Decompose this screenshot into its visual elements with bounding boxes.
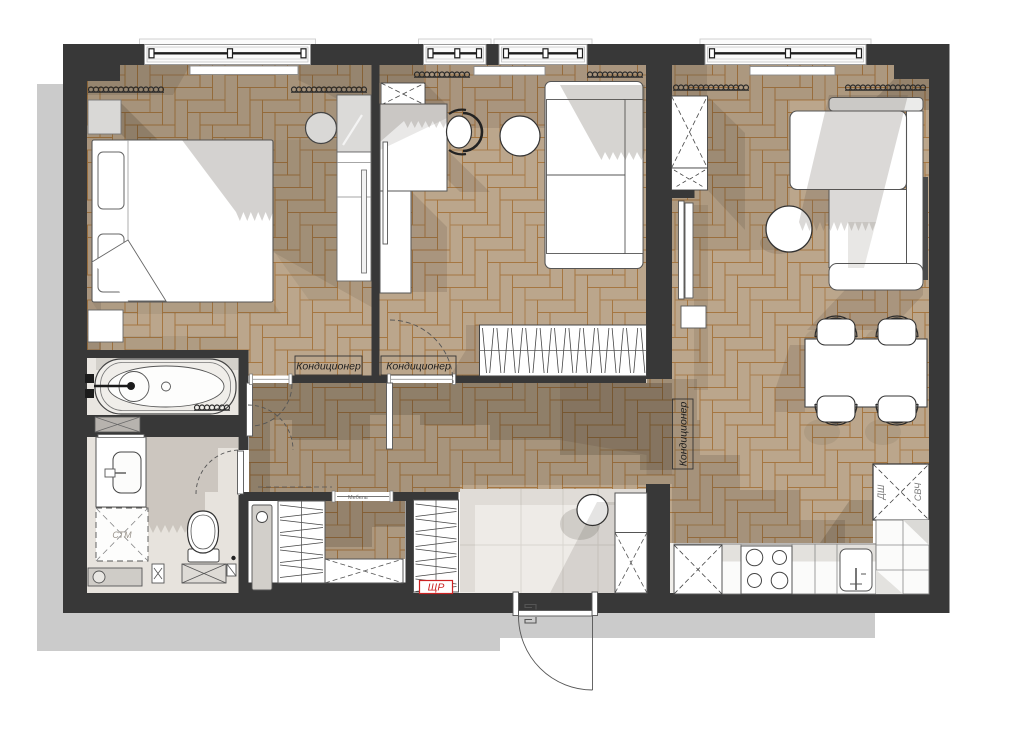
svg-text:ДШ: ДШ bbox=[876, 484, 886, 500]
svg-text:ЩР: ЩР bbox=[428, 582, 445, 594]
svg-text:Мебель: Мебель bbox=[348, 495, 368, 501]
svg-text:Кондиционер: Кондиционер bbox=[678, 402, 690, 467]
svg-text:Кондиционер: Кондиционер bbox=[296, 361, 361, 373]
svg-text:СВЧ: СВЧ bbox=[913, 482, 923, 501]
svg-text:Кондиционер: Кондиционер bbox=[386, 361, 451, 373]
svg-text:СТМ: СТМ bbox=[112, 530, 132, 540]
